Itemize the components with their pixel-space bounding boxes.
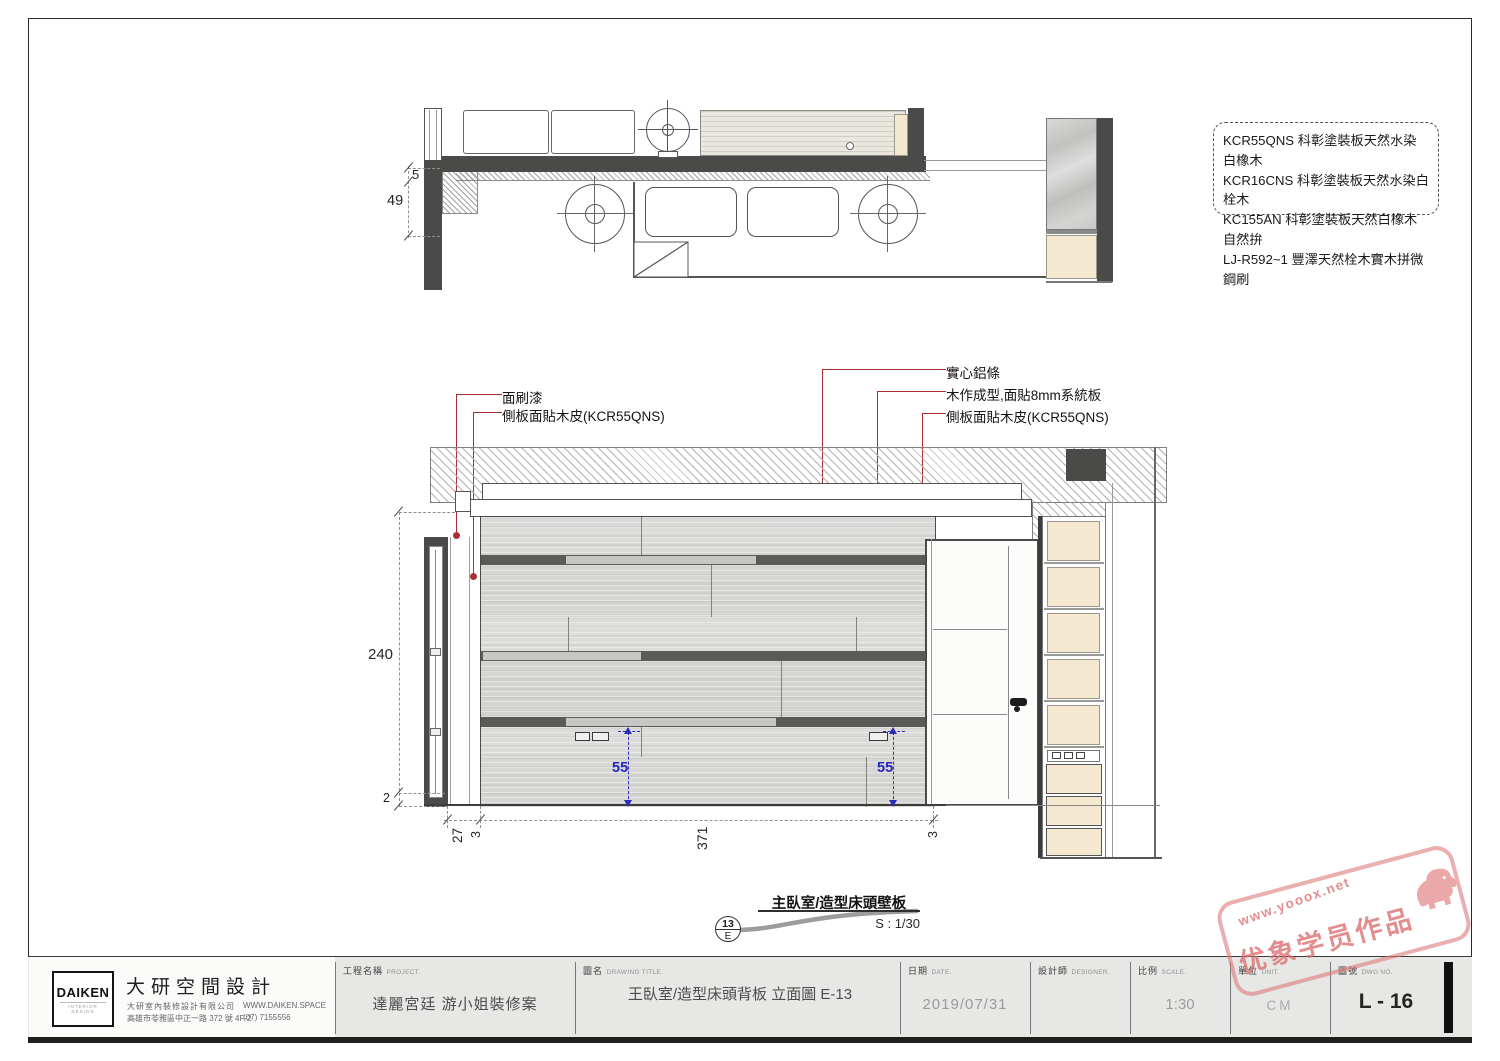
dim-plan-top: 5 [412, 167, 419, 182]
callout-side-veneer-left: 側板面貼木皮(KCR55QNS) [502, 405, 665, 425]
dim-ext [399, 793, 445, 794]
door-handle-rose [1014, 706, 1020, 712]
plan-cabinet [463, 110, 549, 154]
door-stile [1008, 546, 1009, 799]
crown-upper [482, 483, 1022, 500]
note-line: KCR55QNS 科彰塗裝板天然水染白橡木 [1223, 131, 1429, 171]
field-label-date: 日期 DATE. [908, 964, 952, 977]
plan-cabinet-beige [894, 114, 908, 156]
beam-block [1066, 449, 1106, 481]
dim-ext-blue [618, 731, 640, 732]
plan-nightstand-center [585, 204, 605, 224]
side-panel-edge [469, 537, 470, 806]
field-label-drawing-title: 圖名 DRAWING TITLE. [583, 964, 663, 977]
dim-arrow [889, 800, 897, 807]
door-rail [933, 629, 1007, 630]
leader-dot [453, 532, 460, 539]
note-line: KC155AN 科彰塗裝板天然白橡木自然拚 [1223, 210, 1429, 250]
plan-line [924, 170, 1046, 171]
window-mullion [436, 110, 437, 160]
plank-row [481, 617, 935, 651]
callout-aluminum: 實心鋁條 [946, 362, 1000, 382]
plan-lamp-center [662, 124, 674, 136]
floor-line [424, 804, 946, 806]
view-scale: S : 1/30 [770, 916, 920, 931]
view-ref-zone: E [715, 931, 741, 942]
outlet [575, 732, 590, 741]
dim-line [399, 512, 400, 806]
field-label-project: 工程名稱 PROJECT. [343, 964, 420, 977]
field-value-scale: 1:30 [1130, 996, 1230, 1013]
view-title-underline [758, 910, 920, 912]
column-line [1154, 447, 1156, 857]
plan-line [1046, 281, 1112, 283]
window-mullion [435, 550, 436, 794]
dim-line [408, 166, 409, 238]
leader-line [878, 391, 946, 392]
shelf [1044, 562, 1104, 564]
plan-marble-column [1046, 118, 1097, 230]
crown-lower [470, 499, 1032, 517]
dim-ext [399, 806, 447, 807]
plank-row [481, 661, 935, 717]
plan-wall-right [1097, 118, 1113, 282]
leader-dot [470, 573, 477, 580]
cabinet-cubby [1047, 567, 1100, 607]
field-value-dwg-no: L - 16 [1330, 990, 1442, 1014]
window-latch [430, 648, 441, 656]
field-value-date: 2019/07/31 [900, 996, 1030, 1013]
dim-arrow [624, 800, 632, 807]
plan-wall-left [424, 160, 442, 290]
logo-text: DAIKEN [54, 985, 112, 1000]
company-web: WWW.DAIKEN.SPACE [243, 1001, 326, 1010]
aluminum-strip [481, 555, 935, 565]
cabinet-cubby [1047, 613, 1100, 653]
outlet [869, 732, 888, 741]
elephant-icon [1399, 859, 1462, 919]
crown-end-cap [455, 491, 471, 512]
drawer [1046, 828, 1102, 856]
callout-system-board: 木作成型,面貼8mm系統板 [946, 384, 1101, 404]
shelf [1044, 700, 1104, 702]
cell-separator [1030, 962, 1031, 1034]
door-handle [1010, 698, 1027, 706]
plan-knob [846, 142, 854, 150]
dim-outlet-left: 55 [612, 760, 628, 776]
company-name: 大研空間設計 [126, 972, 276, 999]
drawer [1046, 796, 1102, 826]
aluminum-strip [481, 651, 935, 661]
plan-wall-band [442, 156, 926, 172]
plan-bed-edge [633, 276, 1046, 278]
field-label-scale: 比例 SCALE. [1138, 964, 1186, 977]
door [925, 539, 1039, 806]
column-line [1112, 483, 1113, 857]
crosshair [557, 213, 633, 214]
door-rail [933, 714, 1007, 715]
leader-line [474, 412, 502, 413]
plan-wall-stub [908, 108, 924, 172]
plan-cabinet-beige [1046, 235, 1097, 279]
drawer-handle [1076, 752, 1085, 759]
cabinet-base-line [1040, 857, 1162, 859]
plank-row [481, 727, 935, 757]
dim-ext [399, 512, 455, 513]
plank-row [481, 565, 935, 617]
floor-line [946, 805, 1160, 806]
drawer-handle [1052, 752, 1061, 759]
dim-edge-right: 3 [926, 831, 940, 838]
materials-note-box: KCR55QNS 科彰塗裝板天然水染白橡木 KCR16CNS 科彰塗裝板天然水染… [1213, 122, 1439, 215]
plan-divider [1046, 230, 1097, 234]
field-value-drawing-title: 王臥室/造型床頭背板 立面圖 E-13 [590, 986, 890, 1004]
cabinet-cubby [1047, 705, 1100, 745]
plank-row [481, 757, 935, 807]
callout-side-veneer-right: 側板面貼木皮(KCR55QNS) [946, 406, 1109, 426]
plank-row [481, 517, 935, 555]
plan-headboard-hatch [456, 172, 930, 181]
leader-line [457, 394, 502, 395]
callout-paint: 面刷漆 [502, 387, 543, 407]
company-line2: 高雄市苓雅區中正一路 372 號 4F-2 [127, 1013, 251, 1024]
dim-left-offset: 27 [450, 828, 465, 843]
plan-window-frame [424, 108, 442, 162]
field-value-project: 達麗宮廷 游小姐裝修案 [335, 993, 575, 1014]
aluminum-strip [481, 717, 935, 727]
crosshair [667, 100, 668, 158]
plan-pillow [747, 187, 839, 237]
side-panel-edge [450, 537, 451, 806]
crosshair [850, 213, 926, 214]
dim-edge-left: 3 [469, 831, 483, 838]
dim-line-blue [893, 732, 894, 804]
company-logo: DAIKEN INTERIOR DESIGN [52, 971, 114, 1027]
window-panel [429, 546, 443, 798]
dim-wall-width: 371 [694, 827, 710, 850]
outlet [592, 732, 609, 741]
window-latch [430, 728, 441, 736]
leader-line [923, 413, 946, 414]
leader-line [823, 369, 946, 370]
note-line: KCR16CNS 科彰塗裝板天然水染白栓木 [1223, 171, 1429, 211]
crosshair [887, 176, 888, 252]
company-line1: 大研室內裝修設計有限公司 [127, 1001, 235, 1012]
dim-plan-depth: 49 [387, 193, 403, 209]
shelf [1044, 608, 1104, 610]
company-tel: (07) 7155556 [243, 1013, 291, 1022]
dim-base: 2 [383, 791, 390, 805]
shelf [1044, 746, 1104, 748]
field-value-unit: CM [1230, 998, 1330, 1013]
drawer [1046, 764, 1102, 794]
dim-line [444, 820, 938, 821]
plan-pillow [645, 187, 737, 237]
window-mullion [429, 110, 430, 160]
dim-line-blue [628, 732, 629, 804]
plan-bed-fold [633, 240, 691, 280]
plan-line [924, 160, 1046, 161]
field-label-designer: 設計師 DESIGNER. [1038, 964, 1110, 977]
cabinet-cubby [1047, 521, 1100, 561]
dim-ext [408, 236, 440, 237]
crosshair [594, 176, 595, 252]
drawer-handle [1064, 752, 1073, 759]
crosshair [638, 129, 698, 130]
dim-outlet-right: 55 [877, 760, 893, 776]
plan-cabinet [551, 110, 635, 154]
plan-wardrobe-wood [700, 110, 906, 156]
cabinet-cubby [1047, 659, 1100, 699]
logo-subtext: INTERIOR DESIGN [60, 1002, 106, 1014]
view-ref-number: 13 [715, 918, 741, 930]
cell-separator [575, 962, 576, 1034]
note-line: LJ-R592~1 豐澤天然栓木實木拼微鋼刷 [1223, 250, 1429, 290]
end-bar [1444, 962, 1453, 1033]
title-block-bottom-border [28, 1037, 1472, 1043]
plan-lamp-base [658, 151, 678, 158]
dim-ext-blue [883, 731, 905, 732]
door-jamb [931, 539, 932, 806]
dim-wall-height: 240 [368, 646, 393, 663]
plan-nightstand-center [878, 204, 898, 224]
headboard-wall [480, 516, 936, 806]
shelf [1044, 654, 1104, 656]
